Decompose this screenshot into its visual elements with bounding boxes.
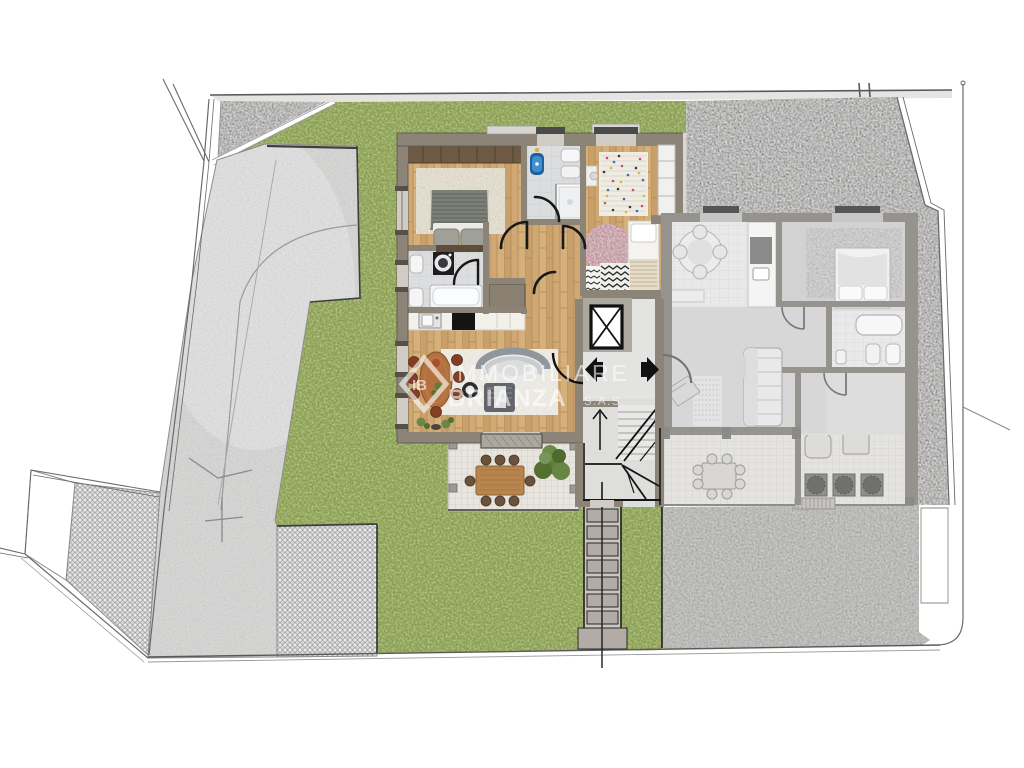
- svg-text:S.A.S.: S.A.S.: [584, 396, 626, 408]
- svg-text:IB: IB: [412, 377, 427, 394]
- svg-text:IMMOBILIARE: IMMOBILIARE: [448, 360, 630, 386]
- svg-text:BRIANZA: BRIANZA: [448, 385, 567, 412]
